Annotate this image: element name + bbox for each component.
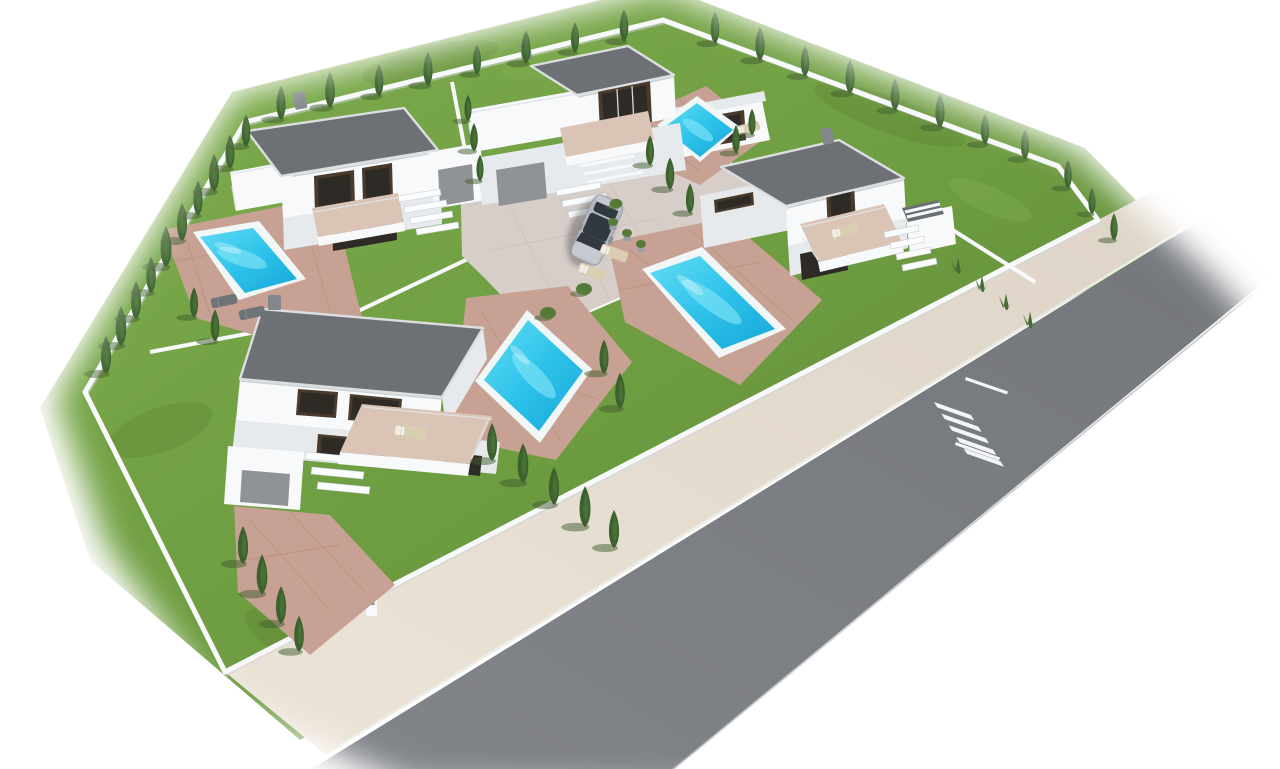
planter-pot	[622, 229, 632, 241]
villa4-garage-door	[240, 470, 290, 506]
planter-pot	[636, 240, 646, 252]
aerial-render	[0, 0, 1280, 769]
villa1-garage-door	[438, 164, 474, 206]
planter-pot	[608, 218, 618, 230]
villa4-chimney	[268, 295, 281, 310]
render-canvas	[0, 0, 1280, 769]
